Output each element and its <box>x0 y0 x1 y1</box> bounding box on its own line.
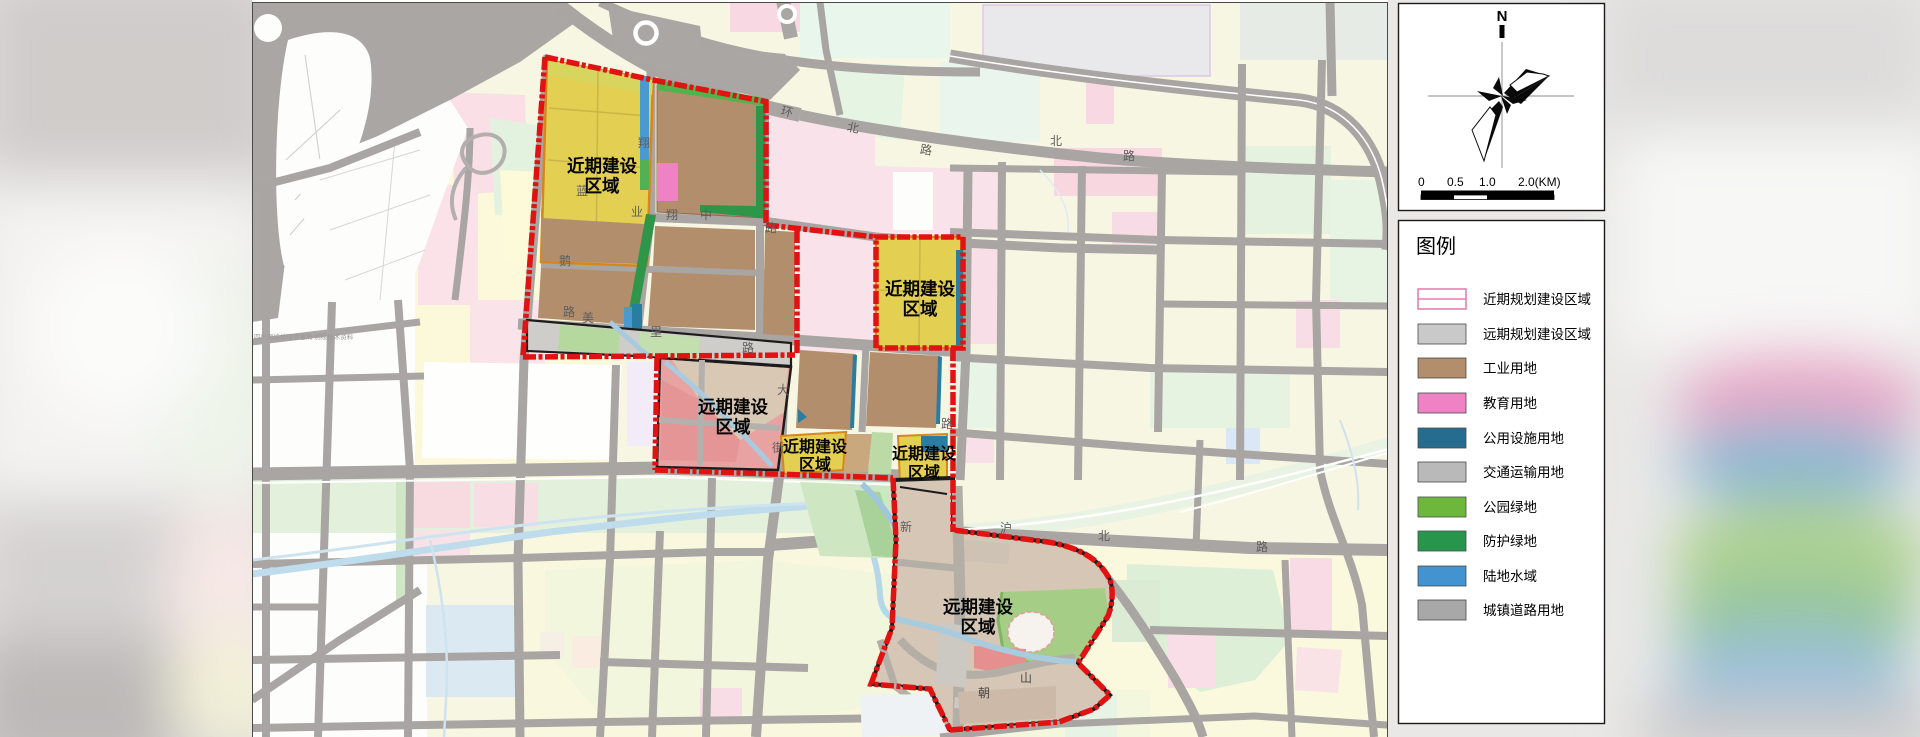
svg-text:近期建设: 近期建设 <box>783 437 848 456</box>
svg-text:路: 路 <box>941 416 953 431</box>
svg-text:区域: 区域 <box>903 299 938 319</box>
svg-text:工业用地: 工业用地 <box>1483 361 1537 376</box>
svg-text:路: 路 <box>1256 539 1268 554</box>
svg-text:区域: 区域 <box>716 417 751 437</box>
svg-text:公园绿地: 公园绿地 <box>1483 500 1537 515</box>
svg-text:远期规划建设区域: 远期规划建设区域 <box>1483 327 1591 342</box>
svg-text:教育用地: 教育用地 <box>1483 396 1537 411</box>
svg-text:区域: 区域 <box>908 463 940 482</box>
svg-text:防护绿地: 防护绿地 <box>1483 534 1537 549</box>
svg-text:美: 美 <box>582 311 594 325</box>
svg-text:图例: 图例 <box>1416 235 1456 258</box>
svg-text:路: 路 <box>563 304 575 319</box>
svg-text:朝: 朝 <box>978 686 990 700</box>
svg-text:沪: 沪 <box>1000 521 1012 535</box>
svg-text:区域: 区域 <box>961 617 996 637</box>
svg-text:路: 路 <box>919 141 933 158</box>
svg-text:新: 新 <box>900 519 912 534</box>
svg-text:路: 路 <box>1123 148 1135 163</box>
svg-text:里: 里 <box>650 325 662 339</box>
svg-text:鹅: 鹅 <box>559 254 571 268</box>
svg-text:近期建设: 近期建设 <box>567 156 637 176</box>
svg-text:城镇道路用地: 城镇道路用地 <box>1483 603 1564 618</box>
svg-text:近期规划建设区域: 近期规划建设区域 <box>1483 292 1591 307</box>
svg-text:翔: 翔 <box>638 136 650 150</box>
svg-text:北: 北 <box>1098 529 1110 543</box>
svg-text:大: 大 <box>777 383 789 397</box>
svg-text:远期建设: 远期建设 <box>943 597 1013 617</box>
svg-text:N: N <box>1497 8 1508 25</box>
svg-text:远期建设: 远期建设 <box>698 397 768 417</box>
svg-text:中: 中 <box>700 207 712 222</box>
svg-text:山: 山 <box>1020 671 1032 685</box>
svg-text:近期建设: 近期建设 <box>892 444 957 463</box>
svg-text:2.0(KM): 2.0(KM) <box>1518 175 1561 189</box>
svg-text:四川测绘地理信息局 测绘技术资料: 四川测绘地理信息局 测绘技术资料 <box>254 332 354 341</box>
svg-text:陆地水域: 陆地水域 <box>1483 569 1537 584</box>
svg-text:区域: 区域 <box>799 455 831 474</box>
svg-text:路: 路 <box>742 340 754 355</box>
svg-text:交通运输用地: 交通运输用地 <box>1483 464 1564 480</box>
svg-text:路: 路 <box>765 220 777 235</box>
svg-text:翔: 翔 <box>666 208 678 222</box>
svg-text:公用设施用地: 公用设施用地 <box>1483 431 1564 446</box>
svg-text:区域: 区域 <box>585 176 620 196</box>
svg-text:1.0: 1.0 <box>1479 175 1496 189</box>
svg-text:0.5: 0.5 <box>1447 175 1464 189</box>
svg-text:近期建设: 近期建设 <box>885 279 955 299</box>
svg-text:北: 北 <box>1050 134 1062 148</box>
svg-text:0: 0 <box>1418 175 1425 189</box>
svg-text:业: 业 <box>631 205 643 219</box>
